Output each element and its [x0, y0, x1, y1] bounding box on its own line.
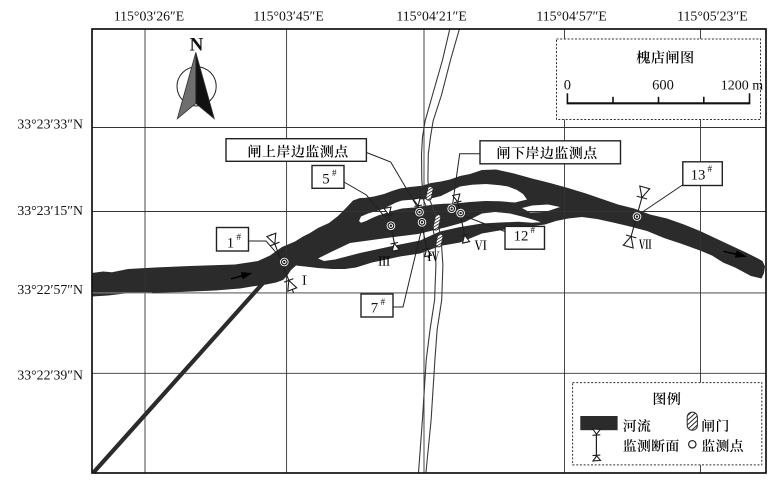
svg-text:115°04′21″E: 115°04′21″E [396, 9, 467, 24]
svg-text:115°03′26″E: 115°03′26″E [114, 9, 185, 24]
svg-text:115°04′57″E: 115°04′57″E [536, 9, 607, 24]
svg-text:#: # [237, 232, 242, 242]
svg-text:12: 12 [514, 229, 529, 245]
svg-text:33°22′39″N: 33°22′39″N [17, 367, 83, 382]
svg-text:33°23′15″N: 33°23′15″N [17, 203, 83, 218]
svg-text:#: # [381, 297, 386, 307]
svg-text:#: # [332, 168, 337, 178]
svg-text:#: # [708, 164, 713, 174]
svg-text:N: N [190, 35, 204, 56]
svg-text:13: 13 [691, 168, 706, 184]
svg-text:0: 0 [564, 78, 571, 94]
svg-text:115°05′23″E: 115°05′23″E [677, 9, 748, 24]
svg-text:7: 7 [371, 301, 378, 317]
svg-text:33°23′33″N: 33°23′33″N [17, 116, 83, 131]
svg-text:#: # [531, 225, 536, 235]
svg-text:1200 m: 1200 m [721, 79, 764, 94]
svg-text:5: 5 [322, 171, 329, 187]
svg-text:33°22′57″N: 33°22′57″N [17, 282, 83, 297]
svg-text:600: 600 [652, 78, 674, 94]
svg-text:1: 1 [227, 235, 234, 251]
svg-text:115°03′45″E: 115°03′45″E [253, 9, 324, 24]
